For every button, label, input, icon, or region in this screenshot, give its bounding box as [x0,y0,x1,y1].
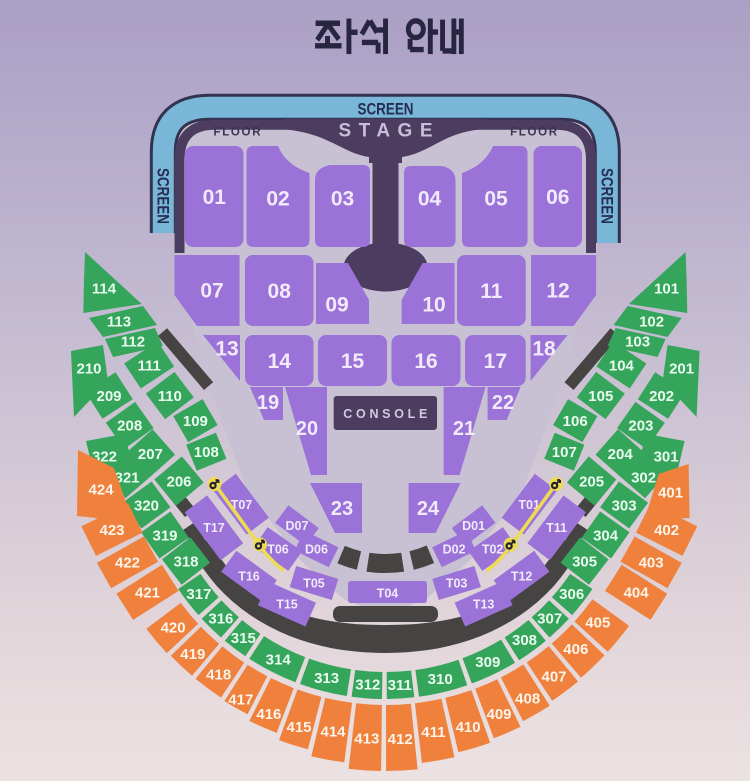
svg-text:423: 423 [99,522,124,539]
svg-text:314: 314 [266,652,292,669]
svg-text:110: 110 [158,388,182,405]
svg-text:308: 308 [512,632,537,649]
svg-text:T03: T03 [446,576,468,590]
svg-text:420: 420 [161,619,186,636]
svg-text:111: 111 [138,357,161,374]
svg-text:T05: T05 [303,576,325,590]
svg-text:06: 06 [546,186,569,209]
svg-text:405: 405 [585,614,610,631]
svg-text:09: 09 [325,293,348,316]
svg-text:318: 318 [173,553,198,570]
svg-text:02: 02 [266,187,289,210]
svg-text:206: 206 [166,473,191,490]
svg-text:08: 08 [268,280,292,303]
svg-text:422: 422 [115,555,140,572]
svg-text:T11: T11 [546,521,567,535]
svg-text:14: 14 [268,350,292,373]
svg-text:316: 316 [208,611,233,628]
svg-text:201: 201 [669,360,694,377]
svg-text:T02: T02 [482,542,504,556]
svg-text:306: 306 [559,586,584,603]
svg-text:04: 04 [418,187,442,210]
svg-text:T17: T17 [203,521,225,535]
svg-text:12: 12 [546,279,569,302]
svg-text:414: 414 [320,723,346,740]
svg-text:D02: D02 [443,542,466,556]
svg-text:406: 406 [563,641,588,658]
svg-text:402: 402 [654,522,679,539]
svg-text:107: 107 [552,444,577,461]
svg-text:23: 23 [331,498,353,520]
svg-text:104: 104 [609,357,635,374]
svg-text:404: 404 [624,585,650,602]
svg-text:11: 11 [480,280,503,303]
svg-text:D06: D06 [305,542,328,556]
svg-text:209: 209 [96,388,121,405]
svg-text:D07: D07 [286,519,309,533]
svg-text:10: 10 [422,293,445,316]
svg-text:15: 15 [341,350,365,373]
svg-text:05: 05 [484,187,508,210]
svg-text:T15: T15 [276,597,298,611]
svg-text:112: 112 [121,333,145,350]
svg-text:310: 310 [428,671,453,688]
svg-text:203: 203 [628,418,653,435]
svg-text:T04: T04 [377,586,399,600]
svg-text:303: 303 [612,497,637,514]
svg-text:13: 13 [215,337,238,360]
svg-text:307: 307 [537,611,562,628]
svg-text:416: 416 [256,706,281,723]
svg-text:SCREEN: SCREEN [598,168,616,224]
svg-text:109: 109 [183,413,208,430]
svg-text:204: 204 [608,446,634,463]
svg-text:418: 418 [206,666,231,683]
svg-text:D01: D01 [462,519,485,533]
svg-text:SCREEN: SCREEN [358,100,414,118]
svg-text:305: 305 [572,553,597,570]
svg-text:302: 302 [631,469,656,486]
svg-text:202: 202 [649,388,674,405]
svg-text:313: 313 [314,670,339,687]
svg-text:207: 207 [138,446,163,463]
svg-text:03: 03 [331,187,354,210]
svg-text:309: 309 [475,654,500,671]
svg-text:113: 113 [107,313,131,330]
svg-text:315: 315 [231,630,256,647]
svg-text:210: 210 [76,360,101,377]
svg-text:208: 208 [117,418,142,435]
svg-text:07: 07 [200,279,223,302]
svg-text:410: 410 [456,719,481,736]
svg-text:407: 407 [541,668,566,685]
svg-text:403: 403 [639,555,664,572]
svg-text:103: 103 [625,333,650,350]
svg-text:T06: T06 [267,542,289,556]
svg-text:304: 304 [593,527,619,544]
svg-text:T16: T16 [238,569,260,583]
svg-text:317: 317 [186,586,211,603]
svg-text:411: 411 [421,724,445,741]
svg-text:409: 409 [486,706,511,723]
svg-text:T12: T12 [511,569,533,583]
svg-text:417: 417 [228,692,253,709]
svg-text:311: 311 [388,677,412,694]
svg-text:102: 102 [639,313,664,330]
svg-text:SCREEN: SCREEN [154,168,172,224]
svg-text:22: 22 [492,392,514,414]
svg-text:301: 301 [654,448,679,465]
svg-text:106: 106 [563,413,588,430]
svg-text:412: 412 [388,731,413,748]
svg-text:20: 20 [296,418,318,440]
svg-text:320: 320 [134,497,159,514]
svg-text:408: 408 [515,690,540,707]
svg-text:24: 24 [417,498,440,520]
svg-text:16: 16 [414,350,437,373]
svg-text:114: 114 [92,280,117,297]
svg-text:319: 319 [152,527,177,544]
svg-text:18: 18 [532,337,556,360]
svg-text:108: 108 [194,444,219,461]
svg-text:21: 21 [453,418,475,440]
svg-text:105: 105 [588,388,613,405]
svg-text:CONSOLE: CONSOLE [343,407,427,421]
svg-text:101: 101 [654,280,679,297]
svg-text:401: 401 [658,484,683,501]
svg-text:415: 415 [286,719,311,736]
svg-text:T13: T13 [473,597,495,611]
svg-text:419: 419 [180,646,205,663]
svg-text:19: 19 [257,392,279,414]
svg-text:205: 205 [579,473,604,490]
svg-text:424: 424 [88,481,114,498]
svg-text:17: 17 [484,350,507,373]
svg-text:413: 413 [354,731,379,748]
svg-text:01: 01 [203,186,227,209]
svg-text:421: 421 [135,585,160,602]
svg-text:312: 312 [355,677,380,694]
